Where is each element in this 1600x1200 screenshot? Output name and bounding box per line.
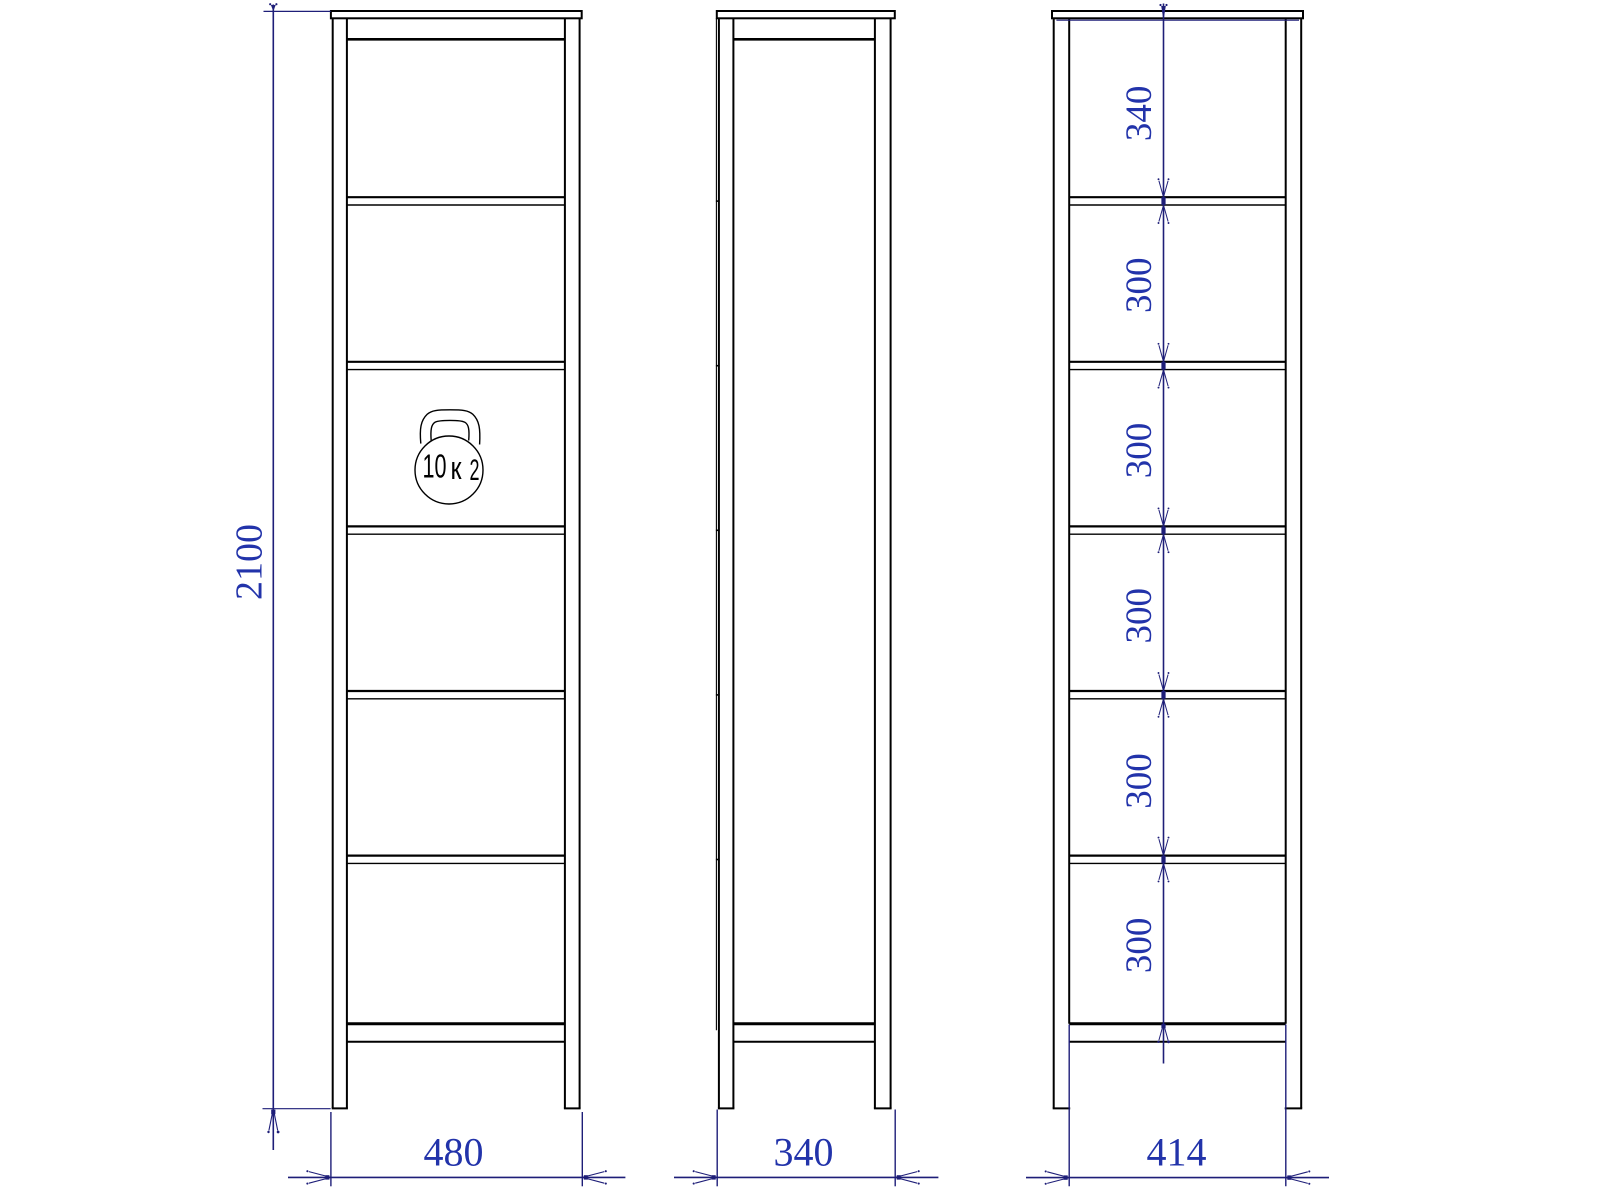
- svg-text:к: к: [451, 450, 463, 486]
- svg-text:414: 414: [1147, 1130, 1207, 1175]
- svg-text:300: 300: [1119, 423, 1160, 479]
- svg-text:300: 300: [1119, 588, 1160, 644]
- svg-text:300: 300: [1119, 257, 1160, 313]
- svg-text:480: 480: [424, 1130, 484, 1175]
- svg-text:340: 340: [774, 1130, 834, 1175]
- svg-text:340: 340: [1119, 86, 1160, 141]
- svg-text:300: 300: [1119, 918, 1160, 974]
- svg-text:300: 300: [1119, 753, 1160, 809]
- svg-text:2100: 2100: [229, 524, 271, 600]
- svg-text:10: 10: [423, 448, 447, 485]
- svg-text:2: 2: [470, 454, 480, 487]
